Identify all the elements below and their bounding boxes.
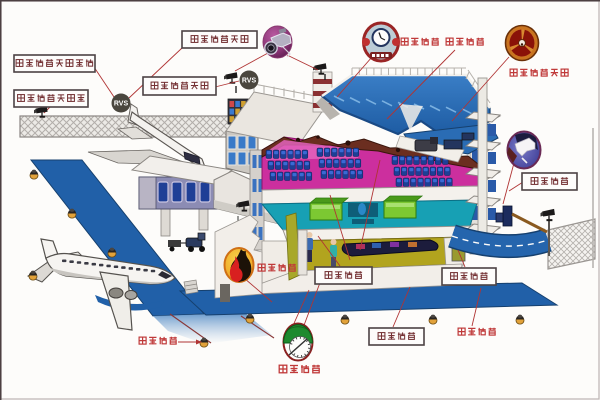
svg-text:RVS: RVS	[114, 101, 129, 108]
svg-text:RVS: RVS	[242, 78, 257, 85]
